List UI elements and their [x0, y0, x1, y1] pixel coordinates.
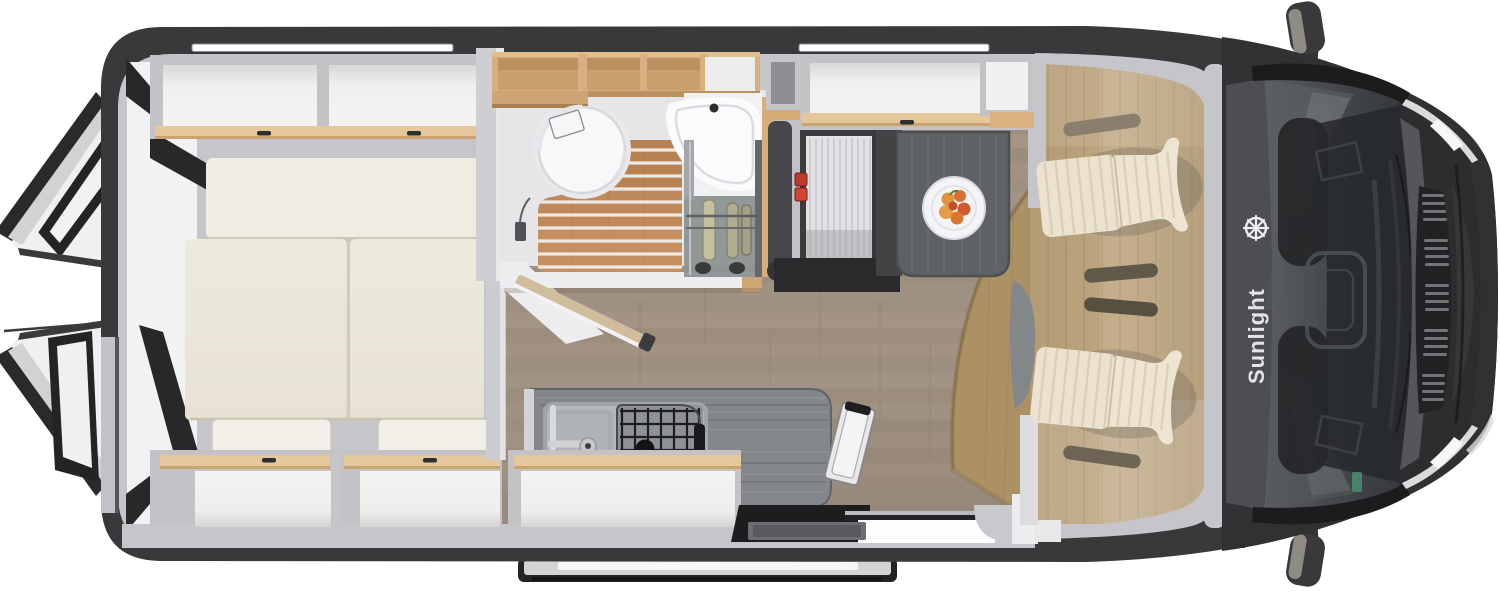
svg-text:Sunlight: Sunlight: [1244, 288, 1269, 384]
